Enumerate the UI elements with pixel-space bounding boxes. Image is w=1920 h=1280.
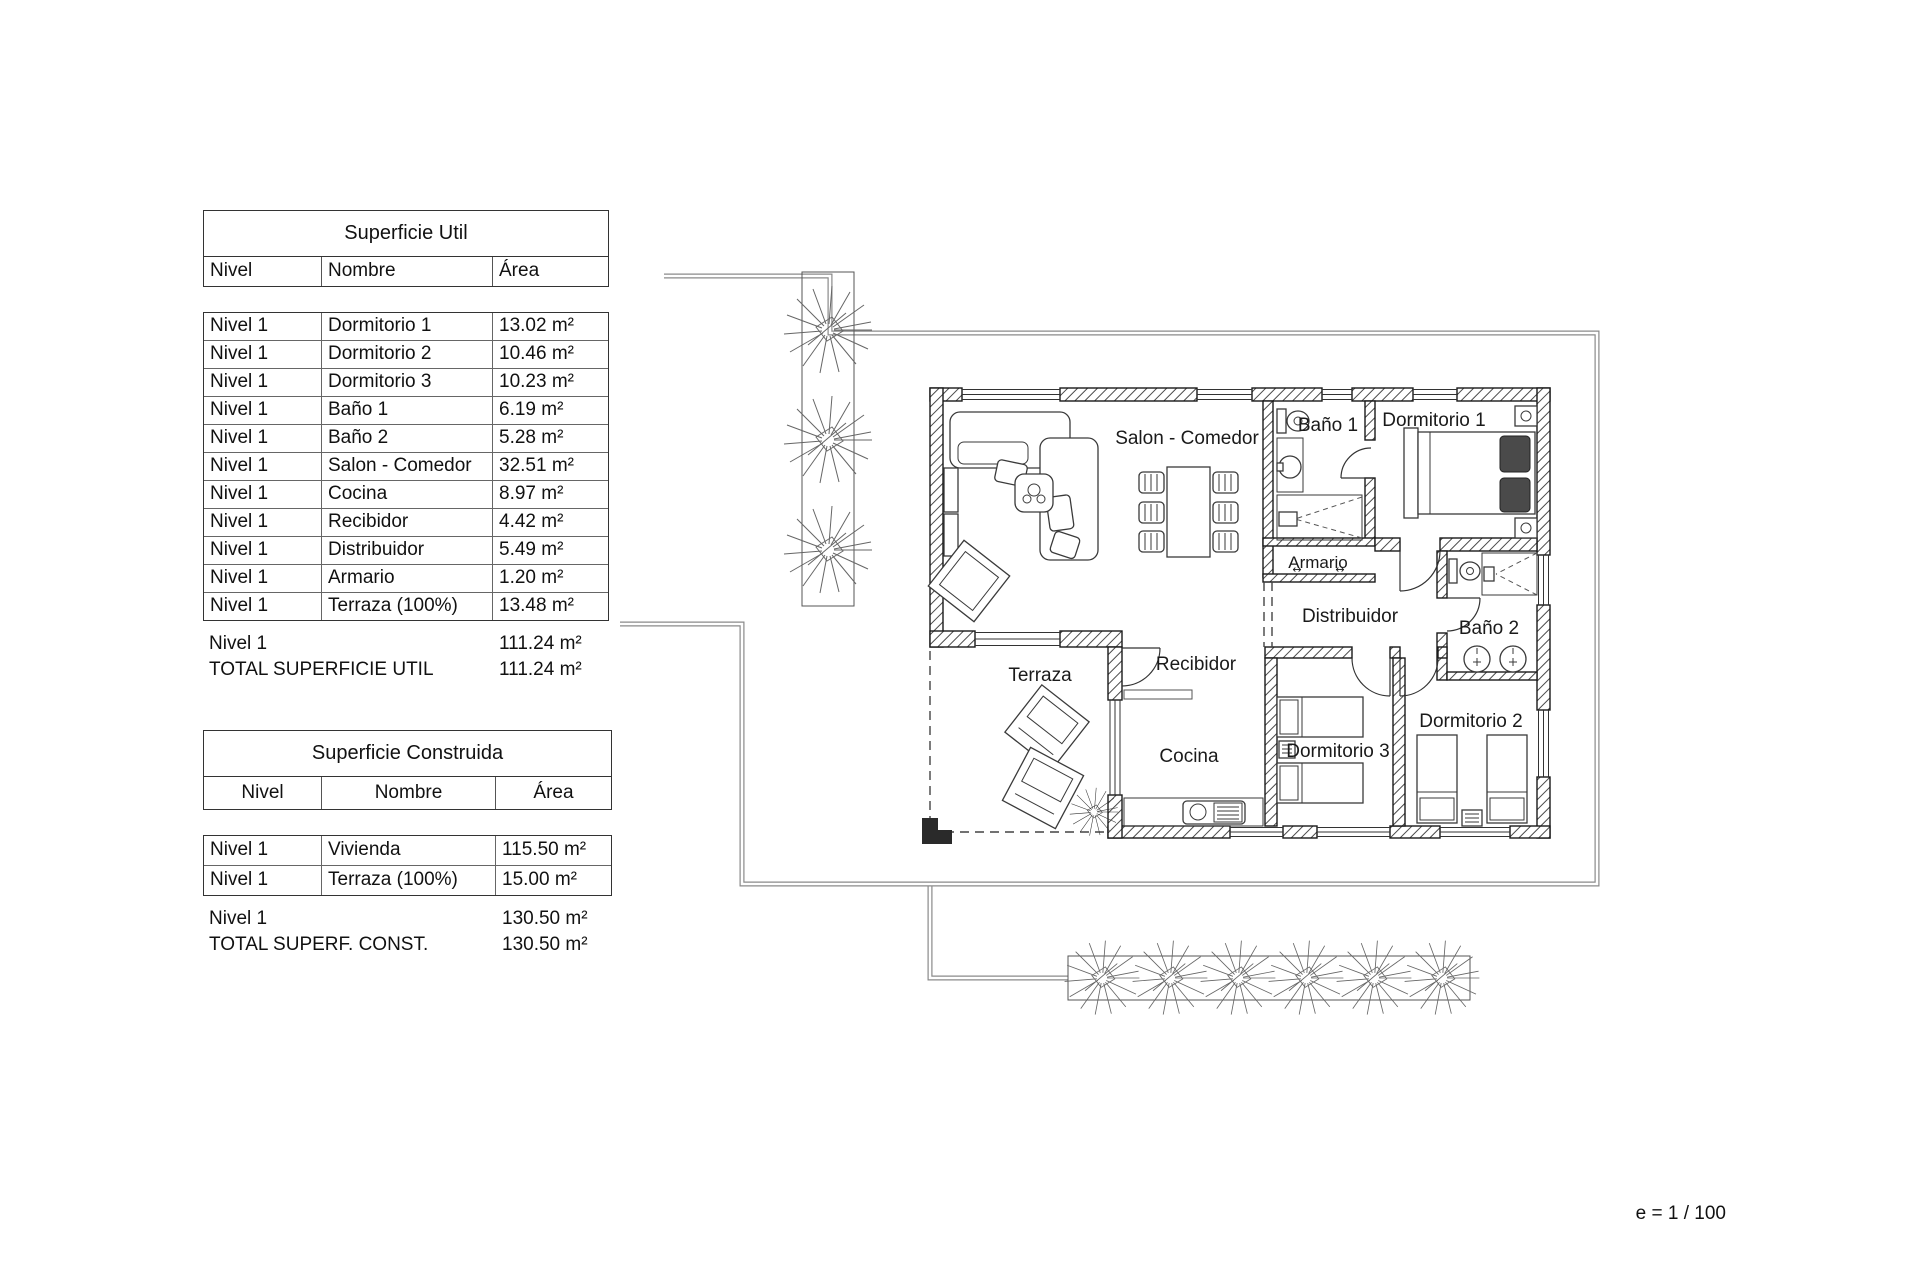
side-table-icon [1015,474,1053,512]
room-label-bano1: Baño 1 [1298,415,1358,436]
bed-footboard [1404,428,1418,518]
pillow-icon [1500,478,1530,512]
single-bed-icon [1487,735,1527,823]
dormitorio2-furniture [1417,735,1527,826]
room-label-distribuidor: Distribuidor [1302,606,1399,627]
hedge-bottom [1065,941,1480,1015]
dining-table-icon [1167,467,1210,557]
dashed-boundaries [930,582,1272,832]
single-bed-icon [1277,697,1363,737]
nightstand-icon [1515,518,1537,538]
scale-label: e = 1 / 100 [1556,1203,1726,1225]
toilet-tank-icon [1277,409,1286,433]
single-bed-icon [1417,735,1457,823]
room-label-dormitorio1: Dormitorio 1 [1382,410,1485,431]
dormitorio3-door [1352,658,1390,696]
media-unit [944,468,958,512]
room-label-bano2: Baño 2 [1459,618,1519,639]
cocina-fixtures [1124,798,1263,826]
terraza-furniture [1002,685,1118,836]
room-label-recibidor: Recibidor [1156,654,1237,675]
pillow-icon [1500,436,1530,472]
bano1-door [1341,448,1371,478]
toilet-tank-icon [1449,559,1457,583]
room-label-dormitorio2: Dormitorio 2 [1419,711,1522,732]
bano2-fixtures [1449,553,1537,672]
single-bed-icon [1277,763,1363,803]
toilet-icon [1460,562,1480,580]
site-boundary [620,276,1597,978]
room-label-dormitorio3: Dormitorio 3 [1286,741,1389,762]
room-label-salon: Salon - Comedor [1115,428,1259,449]
lounge-chair-icon [1002,747,1083,828]
nightstand-icon [1515,406,1537,426]
sliding-door-arrow-icon: ↔ [1335,563,1344,576]
room-label-terraza: Terraza [1008,665,1072,686]
floor-plan: Salon - Comedor Baño 1 Dormitorio 1 Arma… [0,0,1920,1280]
sliding-door-arrow-icon: ↔ [1292,563,1301,576]
dormitorio1-door [1400,551,1440,591]
terraza-corner-step [922,818,952,844]
room-label-cocina: Cocina [1159,746,1219,767]
